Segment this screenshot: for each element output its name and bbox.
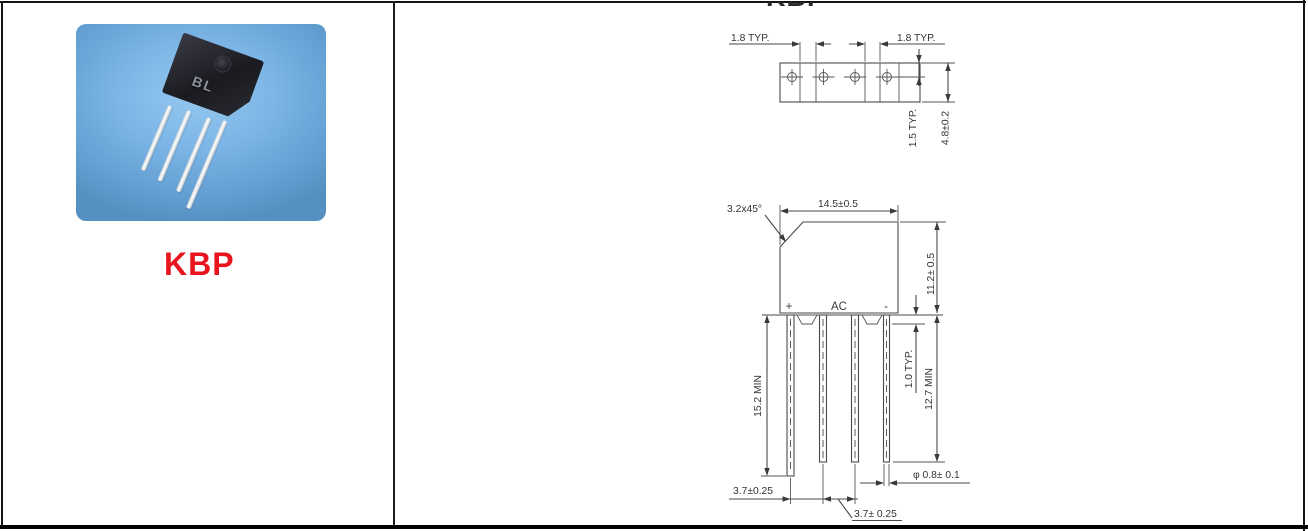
dim-lead-length-min: 12.7 MIN [924, 368, 935, 410]
dim-lead-pitch-2: 3.7± 0.25 [854, 509, 897, 520]
package-outline-drawing: 1.8 TYP. 1.8 TYP. 1.5 TYP. 4.8±0.2 [394, 0, 1308, 531]
pin-label-plus: + [786, 301, 793, 313]
pin-label-ac: AC [831, 301, 847, 313]
page-border-left [1, 1, 3, 528]
product-photo: BL [76, 24, 326, 221]
front-view: 14.5±0.5 3.2x45° 11.2± 0.5 + AC - [727, 199, 970, 521]
dim-lead-pitch-1: 3.7±0.25 [733, 486, 773, 497]
dim-pitch-right: 1.8 TYP. [897, 33, 936, 44]
dim-body-height: 11.2± 0.5 [926, 253, 937, 295]
package-hole-indent [213, 54, 232, 73]
package-body-photo: BL [162, 32, 265, 122]
dim-lead-offset: 1.5 TYP. [908, 109, 919, 148]
dim-pitch-left: 1.8 TYP. [731, 33, 770, 44]
dim-body-thickness: 4.8±0.2 [941, 111, 952, 146]
package-marking: BL [190, 73, 217, 96]
pin-label-minus: - [884, 301, 888, 313]
dim-body-width: 14.5±0.5 [818, 199, 858, 210]
dim-standoff: 1.0 TYP. [904, 350, 915, 389]
datasheet-page: KBP BL KBP 1. [0, 0, 1308, 531]
top-view: 1.8 TYP. 1.8 TYP. 1.5 TYP. 4.8±0.2 [729, 33, 955, 147]
photo-lead-4 [186, 120, 227, 209]
part-name-label: KBP [164, 246, 235, 283]
dim-lead-diameter: φ 0.8± 0.1 [913, 470, 960, 481]
dim-lead-length-long: 15.2 MIN [753, 375, 764, 417]
dim-chamfer: 3.2x45° [727, 204, 762, 215]
